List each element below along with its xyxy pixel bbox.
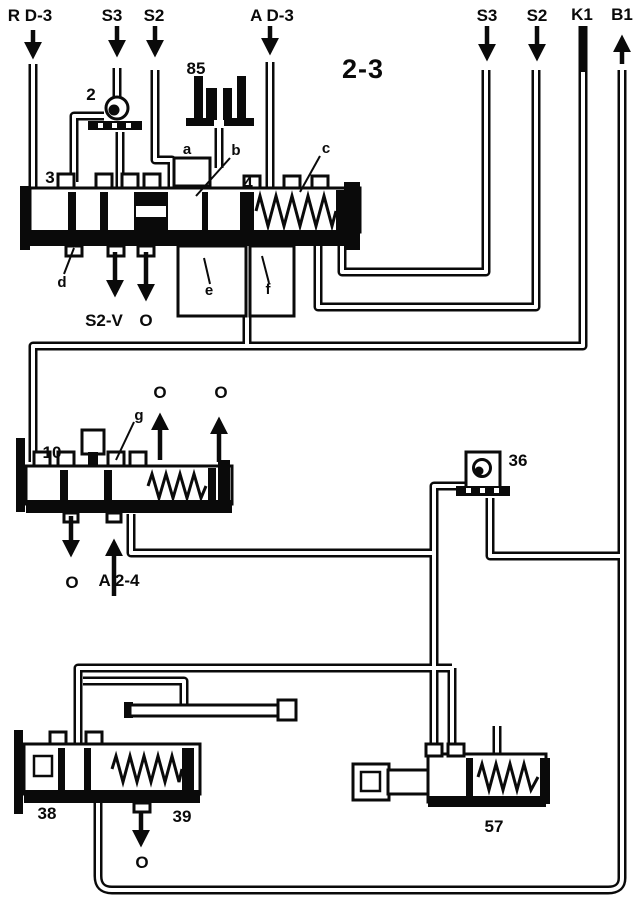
flow-label-s2v: S2-V [85, 311, 123, 330]
solenoid85-plate [224, 118, 254, 126]
part-label-85: 85 [187, 59, 206, 78]
part-label-3: 3 [45, 168, 54, 187]
check2-plate-slot [98, 123, 103, 128]
valve23-land-gap [100, 192, 108, 230]
solenoid85-plate [186, 118, 214, 126]
flow-label-o-valve10-bottom: O [65, 573, 78, 592]
components [14, 26, 588, 814]
pipe-check36-left-core [434, 486, 466, 668]
flow-label-o-valve10-right: O [214, 383, 227, 402]
solenoid85-core [223, 88, 232, 120]
check36-seat-slot [466, 488, 471, 493]
valve38-bottom-band [24, 790, 200, 803]
check-valve-36 [456, 452, 510, 496]
valve39-right-flange [182, 748, 194, 794]
valve57-right-flange [540, 758, 550, 804]
valve10-plug-stem [88, 452, 98, 466]
port-label-k1: K1 [571, 5, 593, 24]
pipe-check36-to-b1-core [490, 498, 620, 556]
part-label-38: 38 [38, 804, 57, 823]
pipe-s3-right-core [342, 70, 486, 272]
check36-ball [475, 467, 484, 476]
valve10-land-gap [104, 470, 112, 502]
valve10-plug [82, 430, 104, 454]
valve57-land-gap [466, 758, 473, 798]
valve57-port-tooth [426, 744, 442, 756]
valve-38-39 [14, 730, 200, 814]
valve38-land-gap [58, 748, 65, 790]
solenoid85-core [206, 88, 217, 120]
chamber-a-box [174, 158, 210, 186]
check36-seat-slot [480, 488, 485, 493]
valve38-left-flange [14, 730, 23, 814]
pipe-check36-to-b1 [490, 498, 620, 556]
valve23-port-tooth [284, 176, 300, 188]
linkage-rod [124, 700, 296, 720]
valve10-left-flange [16, 438, 25, 512]
part-label-57: 57 [485, 817, 504, 836]
valve57-left-block [353, 764, 389, 800]
valve10-bottom-band [26, 500, 232, 513]
valve38-land-gap [84, 748, 91, 790]
pipe-s3-right [342, 70, 486, 272]
valve23-spool-stem [136, 206, 166, 217]
check2-plate-slot [112, 123, 117, 128]
valve57-port-tooth [448, 744, 464, 756]
part-label-2: 2 [86, 85, 95, 104]
callout-b: b [231, 142, 240, 159]
valve38-port-tooth [86, 732, 102, 744]
valve-2-3-shift [20, 158, 360, 316]
port-label-s3-left: S3 [102, 6, 123, 25]
part-label-4: 4 [243, 174, 253, 193]
flow-label-a24: A 2-4 [99, 571, 140, 590]
solenoid-85 [186, 76, 254, 126]
drain-chamber-e [178, 246, 246, 316]
flow-label-o-valve10-left: O [153, 383, 166, 402]
valve10-land-gap [60, 470, 68, 502]
check2-plate-slot [126, 123, 131, 128]
valve23-port-tooth [144, 174, 160, 188]
valve23-land-gap [240, 192, 254, 230]
port-label-ad3: A D-3 [250, 6, 294, 25]
part-label-39: 39 [173, 807, 192, 826]
part-label-36: 36 [509, 451, 528, 470]
valve23-right-flange [344, 182, 360, 250]
rod-shaft [130, 705, 280, 716]
valve57-bottom-band [428, 796, 546, 807]
flow-label-o-valve38: O [135, 853, 148, 872]
k1-line-stub [579, 26, 588, 72]
solenoid85-left-bar [194, 76, 203, 122]
valve10-spring-seat [208, 468, 216, 504]
pipe-check36-left [434, 486, 466, 668]
valve10-right-flange [218, 460, 230, 510]
valve23-port-tooth [122, 174, 138, 188]
valve57-shaft [388, 770, 430, 794]
port-label-s3-right: S3 [477, 6, 498, 25]
valve23-land-gap [202, 192, 208, 230]
pipe-valve10-out-core [131, 514, 434, 553]
valve23-spring-seat [336, 190, 344, 230]
valve23-land-gap [68, 192, 76, 230]
diagram-title: 2-3 [342, 54, 384, 84]
rod-head [278, 700, 296, 720]
valve-57 [353, 744, 550, 807]
drain-chamber-f [250, 246, 294, 316]
port-label-s2-left: S2 [144, 6, 165, 25]
flow-label-o-upper: O [139, 311, 152, 330]
pipe-rod-feed [83, 681, 184, 706]
hydraulic-circuit-diagram: R D-3 S3 S2 A D-3 S3 S2 K1 B1 2-3 85 2 3… [0, 0, 640, 906]
callout-c: c [322, 140, 330, 157]
port-label-rd3: R D-3 [8, 6, 52, 25]
port-label-s2-right: S2 [527, 6, 548, 25]
port-label-b1: B1 [611, 5, 633, 24]
pipe-valve10-out [131, 514, 434, 553]
check36-seat-slot [494, 488, 499, 493]
callout-a: a [183, 141, 192, 158]
callout-g: g [134, 407, 143, 424]
valve10-port-tooth [130, 452, 146, 466]
valve38-bottom-port [134, 803, 150, 812]
solenoid85-right-bar [237, 76, 246, 122]
part-label-10: 10 [43, 443, 62, 462]
callout-d: d [57, 274, 66, 291]
valve23-bottom-band [30, 230, 360, 246]
valve38-port-tooth [50, 732, 66, 744]
valve23-port-tooth [312, 176, 328, 188]
callout-e: e [205, 282, 213, 299]
valve23-port-tooth [58, 174, 74, 188]
valve10-bottom-port [107, 513, 121, 522]
valve23-port-tooth [96, 174, 112, 188]
check2-ball [109, 105, 120, 116]
hydraulic-diagram-page: R D-3 S3 S2 A D-3 S3 S2 K1 B1 2-3 85 2 3… [0, 0, 640, 906]
valve23-bottom-port [66, 246, 82, 256]
